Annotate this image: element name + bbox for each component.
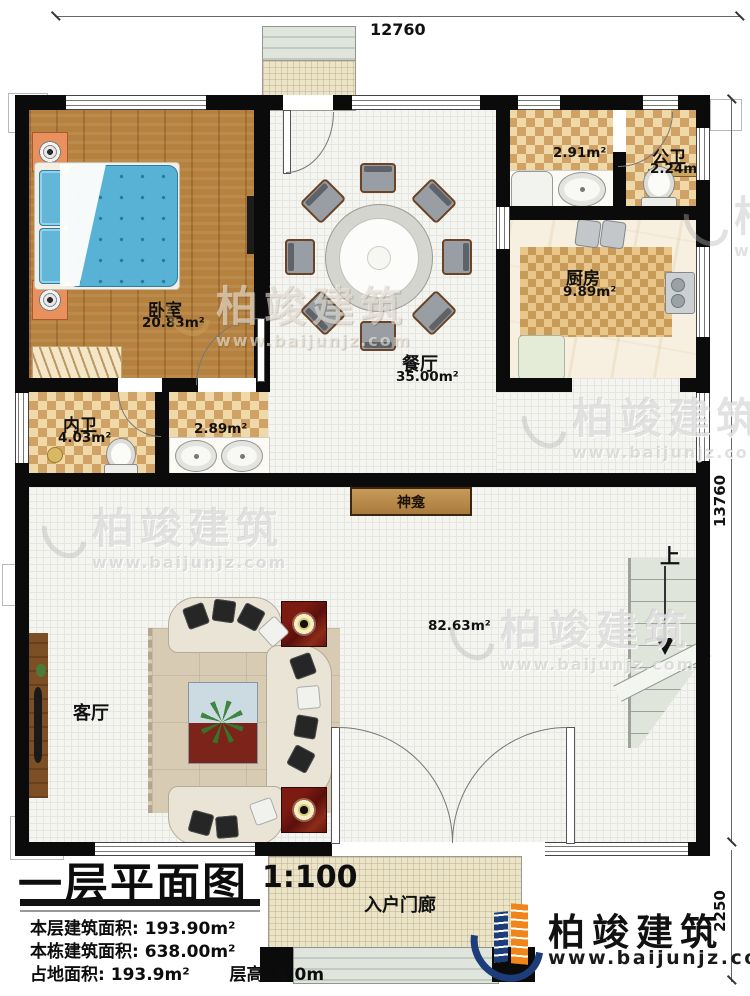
sofa-pillow — [293, 714, 318, 739]
entry-door-leaf — [566, 727, 575, 844]
stat-value: 638.00m² — [145, 942, 236, 962]
wall-wash-south — [496, 206, 696, 220]
stat-label: 本栋建筑面积: — [30, 942, 139, 962]
living-area: 82.63m² — [428, 618, 491, 634]
washing-machine — [511, 171, 553, 208]
dimension-tick — [727, 837, 737, 847]
window-west-innerbath — [15, 393, 29, 463]
side-table — [281, 787, 327, 833]
hall-floor — [496, 378, 696, 473]
north-porch-steps — [262, 26, 356, 62]
dining-chair — [360, 321, 396, 351]
watermark-text: 柏竣建筑 — [734, 196, 750, 238]
fridge — [518, 335, 565, 380]
sofa-pillow — [296, 685, 321, 710]
tv — [34, 687, 42, 763]
brand-logo-tower-icon — [511, 903, 528, 964]
lamp-icon — [292, 798, 316, 822]
kitchen-sink — [574, 218, 602, 248]
lamp-icon — [292, 612, 316, 636]
dining-chair — [360, 163, 396, 193]
kitchen-sink — [599, 219, 627, 249]
brand-logo-tower-icon — [494, 911, 508, 962]
vanity-basin — [221, 440, 263, 472]
dining-area: 35.00m² — [396, 369, 459, 385]
brand-url: www.baijunjz.com — [548, 947, 750, 969]
wash-area: 2.91m² — [553, 145, 606, 161]
dimension-line-right — [731, 100, 732, 843]
burner-icon — [671, 278, 685, 292]
dimension-top-value: 12760 — [370, 20, 426, 39]
wall-kitchen-south — [680, 378, 696, 392]
vanity-basin — [175, 440, 217, 472]
window-east-hall — [696, 393, 710, 461]
dimension-line-top — [55, 16, 740, 17]
watermark-url: www.baijunjz.com — [734, 241, 750, 260]
stat-value: 193.9m² — [111, 965, 190, 985]
stair-up-label: 上 — [660, 540, 680, 569]
vanity-area: 2.89m² — [194, 421, 247, 437]
wall-mid — [15, 473, 710, 487]
dining-chair — [442, 239, 472, 275]
dimension-tick — [727, 975, 737, 985]
stat-label: 层高: — [230, 965, 271, 985]
decor-plant-icon — [36, 664, 46, 677]
porch-label: 入户门廊 — [364, 891, 436, 917]
floorplan-page: { "dimensions": { "top": "12760", "right… — [0, 0, 750, 993]
stair-arrow-line — [664, 566, 666, 638]
living-label: 客厅 — [73, 699, 109, 725]
window-north-dining — [352, 95, 480, 110]
burner-icon — [671, 294, 685, 308]
window-east-publicbath — [696, 128, 710, 180]
kitchen-passthrough-window — [496, 207, 510, 249]
corner-marker — [710, 99, 742, 131]
entry-door-opening — [332, 842, 572, 856]
innerbath-area: 4.03m² — [58, 430, 111, 446]
dining-table-center — [367, 246, 391, 270]
bedroom-area: 20.83m² — [142, 315, 205, 331]
sofa-pillow — [212, 599, 237, 624]
stat-floor-area: 本层建筑面积: 193.90m² — [30, 914, 236, 939]
window-north-wash — [518, 95, 560, 110]
innerbath-door-opening — [118, 378, 162, 392]
table-lamp-icon — [39, 289, 61, 311]
table-lamp-icon — [39, 141, 61, 163]
north-door-opening — [283, 95, 333, 110]
stair-arrow-icon — [656, 638, 674, 655]
stat-label: 占地面积: — [30, 965, 105, 985]
shrine: 神龛 — [350, 487, 472, 516]
dimension-right-value: 13760 — [711, 473, 729, 529]
stat-value: 193.90m² — [145, 919, 236, 939]
dining-chair — [285, 239, 315, 275]
shrine-label: 神龛 — [397, 492, 425, 512]
sofa-pillow — [215, 815, 239, 839]
wash-basin — [558, 172, 606, 207]
floor-drain-icon — [47, 447, 63, 463]
side-table — [281, 601, 327, 647]
stat-label: 本层建筑面积: — [30, 919, 139, 939]
stat-land-area: 占地面积: 193.9m² 层高: 4.0m — [30, 960, 324, 985]
stat-building-area: 本栋建筑面积: 638.00m² — [30, 937, 236, 962]
wardrobe — [32, 346, 122, 379]
kitchen-area: 9.89m² — [563, 284, 616, 300]
window-east-kitchen — [696, 247, 710, 337]
window-north-kitchen — [643, 95, 678, 110]
plan-scale: 1:100 — [262, 860, 358, 895]
wall-kitchen-south — [496, 378, 572, 392]
stat-value: 4.0m — [276, 965, 324, 985]
window-south-right — [545, 842, 688, 856]
window-north-bedroom — [66, 95, 206, 110]
title-underline-thin — [20, 910, 260, 912]
stove — [665, 272, 695, 314]
title-underline — [20, 899, 260, 906]
